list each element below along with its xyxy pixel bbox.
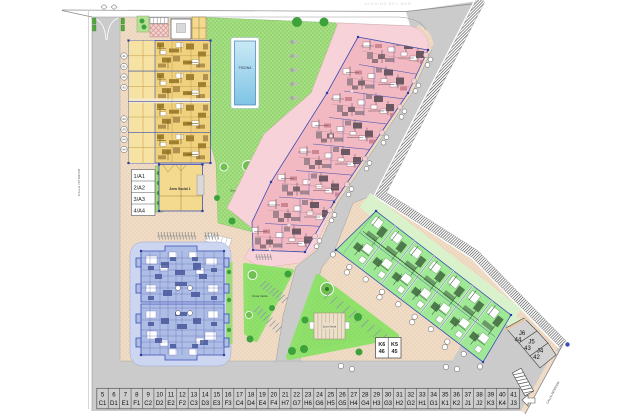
- svg-text:31: 31: [396, 392, 403, 399]
- svg-text:AVENIDA DEL MAR: AVENIDA DEL MAR: [364, 2, 411, 6]
- svg-text:36: 36: [453, 392, 460, 399]
- svg-text:J6: J6: [519, 331, 526, 337]
- svg-text:K5: K5: [391, 342, 398, 348]
- svg-text:D4: D4: [247, 400, 255, 407]
- svg-text:K4: K4: [498, 400, 506, 407]
- svg-text:5: 5: [101, 392, 105, 399]
- svg-text:Área Social 1: Área Social 1: [169, 186, 190, 191]
- svg-text:A4: A4: [122, 148, 126, 152]
- svg-text:H7: H7: [281, 400, 289, 407]
- svg-text:H6: H6: [304, 400, 312, 407]
- svg-text:46: 46: [379, 349, 385, 355]
- svg-text:D2: D2: [156, 400, 164, 407]
- svg-text:C4: C4: [236, 400, 244, 407]
- svg-text:A3: A3: [122, 117, 126, 121]
- svg-text:16: 16: [225, 392, 232, 399]
- svg-text:A2: A2: [122, 86, 126, 90]
- svg-text:H2: H2: [396, 400, 404, 407]
- svg-text:28: 28: [362, 392, 369, 399]
- svg-text:25: 25: [328, 392, 335, 399]
- svg-text:29: 29: [373, 392, 380, 399]
- svg-text:24: 24: [316, 392, 323, 399]
- svg-text:37: 37: [465, 392, 472, 399]
- svg-text:35: 35: [442, 392, 449, 399]
- svg-text:40: 40: [499, 392, 506, 399]
- svg-text:A1: A1: [122, 65, 126, 69]
- svg-text:10: 10: [156, 392, 163, 399]
- svg-text:6: 6: [112, 392, 116, 399]
- svg-text:43: 43: [524, 346, 531, 352]
- svg-text:F1: F1: [133, 400, 141, 407]
- svg-text:45: 45: [392, 349, 398, 355]
- svg-text:F2: F2: [179, 400, 187, 407]
- svg-text:G3: G3: [384, 400, 393, 407]
- svg-text:K3: K3: [487, 400, 495, 407]
- svg-text:H3: H3: [373, 400, 381, 407]
- svg-text:44: 44: [515, 338, 522, 344]
- svg-text:D1: D1: [110, 400, 118, 407]
- svg-text:D3: D3: [201, 400, 209, 407]
- svg-text:42: 42: [533, 355, 540, 361]
- svg-text:Zona Verde: Zona Verde: [323, 325, 337, 329]
- svg-text:G4: G4: [361, 400, 370, 407]
- svg-text:K2: K2: [453, 400, 461, 407]
- svg-text:41: 41: [510, 392, 517, 399]
- svg-text:C1: C1: [99, 400, 107, 407]
- svg-text:J1: J1: [465, 400, 472, 407]
- svg-text:32: 32: [407, 392, 414, 399]
- svg-text:27: 27: [350, 392, 357, 399]
- svg-text:G6: G6: [315, 400, 324, 407]
- svg-text:E3: E3: [213, 400, 221, 407]
- svg-text:K6: K6: [378, 342, 385, 348]
- svg-text:1/A1: 1/A1: [134, 174, 146, 180]
- svg-text:J5: J5: [528, 340, 535, 346]
- svg-text:A3: A3: [122, 128, 126, 132]
- svg-text:33: 33: [419, 392, 426, 399]
- svg-text:PISCINA: PISCINA: [239, 66, 253, 70]
- svg-text:A4: A4: [122, 138, 126, 142]
- svg-text:13: 13: [190, 392, 197, 399]
- svg-text:15: 15: [213, 392, 220, 399]
- svg-text:Zona Verde: Zona Verde: [252, 294, 268, 298]
- svg-text:H4: H4: [350, 400, 358, 407]
- svg-text:14: 14: [202, 392, 209, 399]
- svg-text:J3: J3: [510, 400, 517, 407]
- svg-text:18: 18: [248, 392, 255, 399]
- svg-text:20: 20: [270, 392, 277, 399]
- svg-text:39: 39: [487, 392, 494, 399]
- svg-text:17: 17: [236, 392, 243, 399]
- svg-text:G1: G1: [430, 400, 439, 407]
- svg-text:3/A3: 3/A3: [134, 197, 146, 203]
- svg-text:C2: C2: [144, 400, 152, 407]
- svg-text:CALLE INTERIOR: CALLE INTERIOR: [77, 168, 81, 196]
- svg-text:26: 26: [339, 392, 346, 399]
- svg-text:38: 38: [476, 392, 483, 399]
- svg-text:J2: J2: [476, 400, 483, 407]
- svg-text:23: 23: [305, 392, 312, 399]
- svg-text:K1: K1: [441, 400, 449, 407]
- svg-text:11: 11: [168, 392, 175, 399]
- svg-text:E2: E2: [167, 400, 175, 407]
- svg-text:G5: G5: [338, 400, 347, 407]
- svg-text:E1: E1: [122, 400, 130, 407]
- svg-text:22: 22: [293, 392, 300, 399]
- svg-text:F3: F3: [225, 400, 233, 407]
- svg-text:A2: A2: [122, 75, 126, 79]
- svg-text:30: 30: [385, 392, 392, 399]
- svg-text:19: 19: [259, 392, 266, 399]
- svg-text:2/A2: 2/A2: [134, 186, 146, 192]
- svg-text:CALLE INTERIOR: CALLE INTERIOR: [545, 380, 561, 404]
- svg-text:12: 12: [179, 392, 186, 399]
- svg-text:4/A4: 4/A4: [134, 209, 146, 215]
- svg-text:H1: H1: [418, 400, 426, 407]
- svg-text:F4: F4: [270, 400, 278, 407]
- svg-text:J4: J4: [537, 349, 544, 355]
- svg-text:E4: E4: [259, 400, 267, 407]
- svg-text:A1: A1: [122, 54, 126, 58]
- svg-text:G2: G2: [407, 400, 416, 407]
- svg-text:G7: G7: [293, 400, 302, 407]
- svg-text:21: 21: [282, 392, 289, 399]
- svg-text:H5: H5: [327, 400, 335, 407]
- svg-text:34: 34: [430, 392, 437, 399]
- svg-text:C3: C3: [190, 400, 198, 407]
